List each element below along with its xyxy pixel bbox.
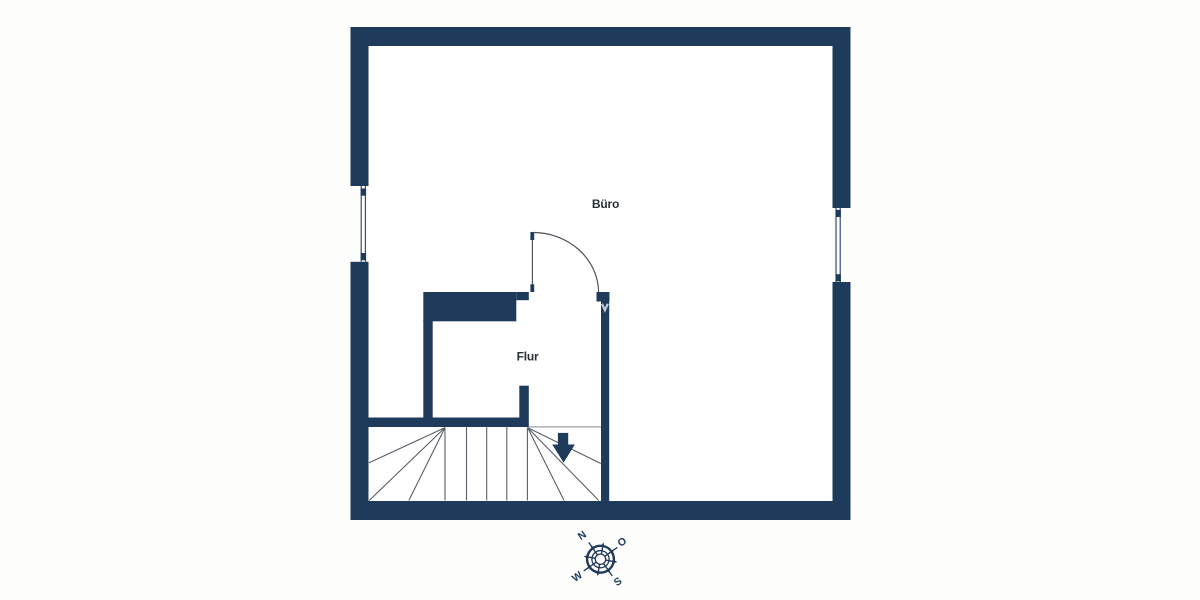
svg-text:Flur: Flur xyxy=(517,350,539,364)
svg-text:Büro: Büro xyxy=(592,197,619,211)
